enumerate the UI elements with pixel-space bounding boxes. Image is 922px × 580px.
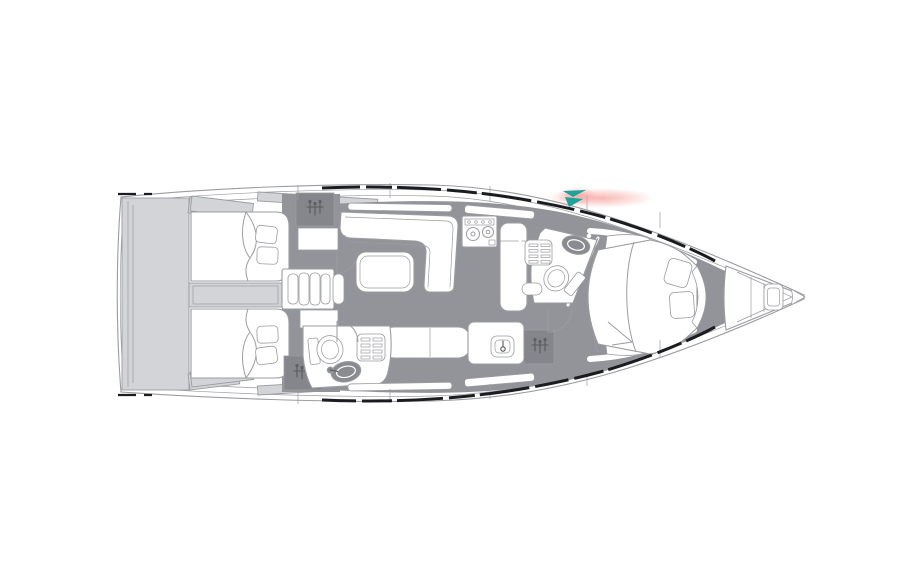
- companionway-steps: [282, 269, 334, 309]
- step-stool: [522, 283, 542, 295]
- faucet: [586, 233, 591, 238]
- windlass-icon: [764, 284, 783, 310]
- doorway: [298, 228, 338, 250]
- doorway: [300, 310, 338, 328]
- engine-box: [189, 283, 282, 307]
- stove-icon: [462, 216, 497, 247]
- galley-bench: [381, 327, 471, 358]
- galley-counter: [500, 223, 527, 311]
- nav-arrow-marker[interactable]: [546, 187, 654, 208]
- step: [310, 273, 320, 305]
- yacht-floor-plan: [0, 0, 922, 580]
- pillow: [255, 225, 278, 244]
- wardrobe-port: [296, 193, 334, 226]
- bow-locker: [724, 266, 805, 330]
- sink-icon: [491, 336, 514, 357]
- bow-tip: [791, 289, 805, 305]
- pillow: [255, 346, 278, 365]
- step: [321, 274, 330, 304]
- step: [288, 274, 298, 304]
- pillow: [257, 326, 279, 344]
- berth: [191, 212, 289, 281]
- pillow: [257, 247, 279, 265]
- shower-grate-icon: [357, 334, 385, 361]
- aft-cabin-starboard: [190, 309, 289, 387]
- floor-plan-canvas: [0, 0, 922, 580]
- pillow: [669, 291, 695, 319]
- salon-table: [356, 252, 414, 292]
- shower-grate-icon: [525, 240, 552, 265]
- seat-cushion: [333, 274, 344, 304]
- aft-head: [303, 326, 391, 388]
- step: [299, 273, 309, 305]
- wardrobe-forward: [524, 330, 554, 364]
- berth: [191, 309, 289, 378]
